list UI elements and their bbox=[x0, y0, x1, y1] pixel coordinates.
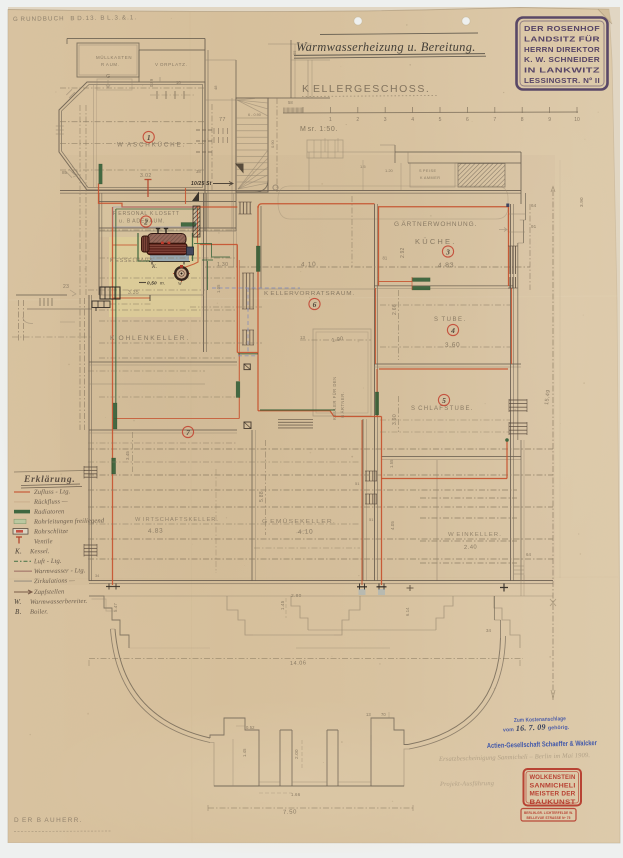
svg-text:0.89: 0.89 bbox=[149, 78, 154, 87]
svg-text:gehörig.: gehörig. bbox=[548, 725, 570, 732]
svg-text:LANDSITZ FÜR: LANDSITZ FÜR bbox=[524, 34, 600, 43]
svg-text:91: 91 bbox=[531, 224, 537, 229]
svg-text:10: 10 bbox=[574, 117, 580, 123]
svg-text:K OHLENKELLER.: K OHLENKELLER. bbox=[110, 336, 190, 342]
svg-text:5: 5 bbox=[439, 117, 442, 123]
svg-text:Zufluss - Ltg.: Zufluss - Ltg. bbox=[34, 488, 71, 496]
svg-text:64: 64 bbox=[526, 552, 532, 557]
svg-text:DER ROSENHOF: DER ROSENHOF bbox=[524, 24, 600, 33]
svg-text:4.10: 4.10 bbox=[301, 261, 317, 268]
svg-text:m.: m. bbox=[160, 281, 165, 286]
svg-text:2: 2 bbox=[143, 217, 148, 226]
svg-text:Warmwasser - Ltg.: Warmwasser - Ltg. bbox=[34, 567, 86, 575]
svg-text:0.90: 0.90 bbox=[270, 139, 275, 148]
svg-text:18: 18 bbox=[176, 80, 181, 85]
svg-text:4.83: 4.83 bbox=[148, 527, 164, 535]
svg-text:10/25 St: 10/25 St bbox=[191, 181, 212, 187]
svg-text:7: 7 bbox=[186, 428, 190, 437]
svg-text:70: 70 bbox=[381, 712, 386, 717]
svg-text:Rückfluss —: Rückfluss — bbox=[33, 498, 68, 506]
svg-text:3.60: 3.60 bbox=[445, 341, 461, 349]
svg-text:0.52: 0.52 bbox=[246, 725, 255, 730]
svg-text:B.: B. bbox=[15, 608, 22, 616]
svg-text:34: 34 bbox=[486, 628, 492, 633]
svg-text:4.10: 4.10 bbox=[298, 528, 314, 536]
svg-text:Kessel.: Kessel. bbox=[29, 548, 50, 555]
svg-text:Warmwasserheizung u. Bereitung: Warmwasserheizung u. Bereitung. bbox=[296, 40, 476, 54]
svg-text:6.14: 6.14 bbox=[405, 607, 410, 616]
svg-text:1.55: 1.55 bbox=[389, 459, 394, 468]
svg-text:Radiatoren: Radiatoren bbox=[33, 508, 65, 516]
svg-text:MÜLLKASTEN: MÜLLKASTEN bbox=[96, 55, 132, 60]
svg-text:9: 9 bbox=[548, 117, 551, 123]
svg-text:S CHLAFSTUBE.: S CHLAFSTUBE. bbox=[411, 406, 474, 412]
svg-text:WOLKENSTEIN: WOLKENSTEIN bbox=[530, 774, 576, 781]
svg-text:5.47: 5.47 bbox=[113, 603, 118, 612]
svg-text:Warmwasserbereiter.: Warmwasserbereiter. bbox=[30, 598, 88, 606]
svg-text:55: 55 bbox=[292, 50, 297, 55]
svg-text:1.5: 1.5 bbox=[360, 164, 366, 169]
svg-text:Rohrleitungen freiliegend: Rohrleitungen freiliegend bbox=[33, 517, 105, 525]
svg-text:BERLIN-GR. LICHTERFELDE W.: BERLIN-GR. LICHTERFELDE W. bbox=[524, 811, 573, 815]
svg-text:Zirkulations —: Zirkulations — bbox=[34, 577, 75, 585]
svg-text:D ER B AUHERR.: D ER B AUHERR. bbox=[14, 817, 83, 824]
svg-text:4: 4 bbox=[411, 117, 414, 123]
svg-text:3.45: 3.45 bbox=[125, 451, 130, 460]
svg-text:K AMMER: K AMMER bbox=[420, 176, 440, 180]
svg-text:SANMICHELI: SANMICHELI bbox=[530, 782, 576, 789]
svg-text:2.66: 2.66 bbox=[392, 304, 398, 315]
svg-text:Zapfstellen: Zapfstellen bbox=[34, 588, 65, 596]
svg-text:BAUKUNST: BAUKUNST bbox=[530, 799, 576, 806]
svg-text:13: 13 bbox=[300, 335, 305, 340]
svg-text:85: 85 bbox=[62, 170, 68, 175]
svg-text:48: 48 bbox=[213, 85, 218, 90]
svg-text:16. 7. 09: 16. 7. 09 bbox=[516, 722, 546, 733]
svg-text:R AUM.: R AUM. bbox=[101, 62, 120, 67]
svg-text:3.35: 3.35 bbox=[128, 290, 139, 296]
svg-text:0,50: 0,50 bbox=[147, 281, 157, 287]
svg-text:3: 3 bbox=[445, 247, 450, 256]
svg-text:K.: K. bbox=[14, 547, 22, 555]
svg-text:23: 23 bbox=[63, 284, 69, 290]
svg-text:1: 1 bbox=[329, 117, 332, 123]
svg-text:IN LANKWITZ: IN LANKWITZ bbox=[524, 66, 600, 75]
svg-text:K.: K. bbox=[151, 264, 158, 270]
svg-text:3.90: 3.90 bbox=[579, 197, 584, 207]
svg-text:77: 77 bbox=[219, 117, 226, 123]
svg-text:14.06: 14.06 bbox=[290, 660, 307, 667]
svg-text:Ventile: Ventile bbox=[34, 538, 53, 545]
svg-text:2.92: 2.92 bbox=[400, 247, 406, 258]
svg-text:64: 64 bbox=[531, 203, 537, 208]
svg-text:34: 34 bbox=[95, 574, 99, 578]
svg-text:Erklärung.: Erklärung. bbox=[23, 475, 76, 485]
svg-text:KÜCHE.: KÜCHE. bbox=[415, 237, 457, 246]
svg-text:2: 2 bbox=[356, 117, 359, 123]
svg-text:4.05: 4.05 bbox=[390, 521, 395, 530]
svg-text:1.66: 1.66 bbox=[291, 792, 301, 797]
svg-text:2.00: 2.00 bbox=[294, 749, 299, 759]
svg-text:5.88: 5.88 bbox=[259, 491, 265, 502]
svg-text:M sr. 1:50.: M sr. 1:50. bbox=[300, 126, 338, 133]
svg-text:W EINKELLER.: W EINKELLER. bbox=[448, 532, 502, 538]
svg-text:13: 13 bbox=[366, 712, 371, 717]
svg-text:51: 51 bbox=[369, 517, 374, 522]
svg-text:V ORPLATZ.: V ORPLATZ. bbox=[155, 62, 188, 67]
svg-text:6 - 0.90: 6 - 0.90 bbox=[248, 113, 261, 117]
svg-text:S TUBE.: S TUBE. bbox=[434, 317, 467, 323]
svg-text:3.90: 3.90 bbox=[392, 414, 398, 425]
svg-text:7.50: 7.50 bbox=[283, 810, 297, 816]
svg-text:5: 5 bbox=[442, 396, 446, 405]
svg-text:2.40: 2.40 bbox=[464, 545, 477, 551]
svg-text:51: 51 bbox=[355, 481, 360, 486]
svg-text:1.30: 1.30 bbox=[217, 262, 228, 268]
svg-text:K ELLERVORRATSRAUM.: K ELLERVORRATSRAUM. bbox=[264, 291, 355, 297]
svg-text:K ELLERGESCHOSS.: K ELLERGESCHOSS. bbox=[302, 83, 430, 95]
svg-text:1.45: 1.45 bbox=[242, 748, 247, 757]
svg-text:1.45: 1.45 bbox=[280, 600, 285, 610]
svg-text:G ÄRTNERWOHNUNG.: G ÄRTNERWOHNUNG. bbox=[394, 220, 477, 228]
svg-text:u. B ADERAUM.: u. B ADERAUM. bbox=[119, 219, 165, 225]
svg-text:1.05: 1.05 bbox=[216, 284, 221, 293]
svg-text:vom: vom bbox=[503, 727, 514, 733]
svg-text:HERRN DIREKTOR: HERRN DIREKTOR bbox=[524, 45, 600, 54]
svg-text:7: 7 bbox=[493, 117, 496, 123]
svg-text:S PEISE: S PEISE bbox=[419, 169, 437, 173]
svg-text:Boiler.: Boiler. bbox=[30, 608, 48, 615]
svg-text:G ÄRTNER.: G ÄRTNER. bbox=[340, 392, 345, 418]
svg-text:W IRTSCHAFTSKELLER.: W IRTSCHAFTSKELLER. bbox=[135, 517, 219, 523]
svg-text:Luft - Ltg.: Luft - Ltg. bbox=[33, 558, 62, 566]
svg-text:1: 1 bbox=[147, 133, 151, 142]
svg-text:K ESSELHAUS: K ESSELHAUS bbox=[110, 258, 154, 264]
svg-text:K ELLER FÜR DEN: K ELLER FÜR DEN bbox=[332, 376, 337, 420]
svg-text:MEISTER DER: MEISTER DER bbox=[530, 791, 576, 798]
svg-text:3: 3 bbox=[384, 117, 387, 123]
svg-text:3.02: 3.02 bbox=[140, 173, 152, 179]
svg-text:Projekt-Ausführung: Projekt-Ausführung bbox=[439, 780, 495, 788]
svg-text:58: 58 bbox=[288, 100, 293, 105]
svg-text:81: 81 bbox=[383, 256, 388, 261]
svg-text:LESSINGSTR. Nº II: LESSINGSTR. Nº II bbox=[524, 76, 600, 85]
svg-text:BELLEVUE STRASSE Nº 75: BELLEVUE STRASSE Nº 75 bbox=[527, 816, 571, 820]
svg-text:6: 6 bbox=[313, 300, 317, 309]
svg-text:4: 4 bbox=[450, 326, 455, 335]
svg-text:1.20: 1.20 bbox=[385, 168, 394, 173]
svg-text:K. W. SCHNEIDER: K. W. SCHNEIDER bbox=[524, 55, 600, 64]
svg-text:W.: W. bbox=[14, 598, 22, 606]
svg-text:Rohrschlitze: Rohrschlitze bbox=[33, 528, 68, 536]
svg-text:6: 6 bbox=[466, 117, 469, 123]
svg-text:38: 38 bbox=[196, 169, 201, 174]
svg-text:8: 8 bbox=[521, 117, 524, 123]
